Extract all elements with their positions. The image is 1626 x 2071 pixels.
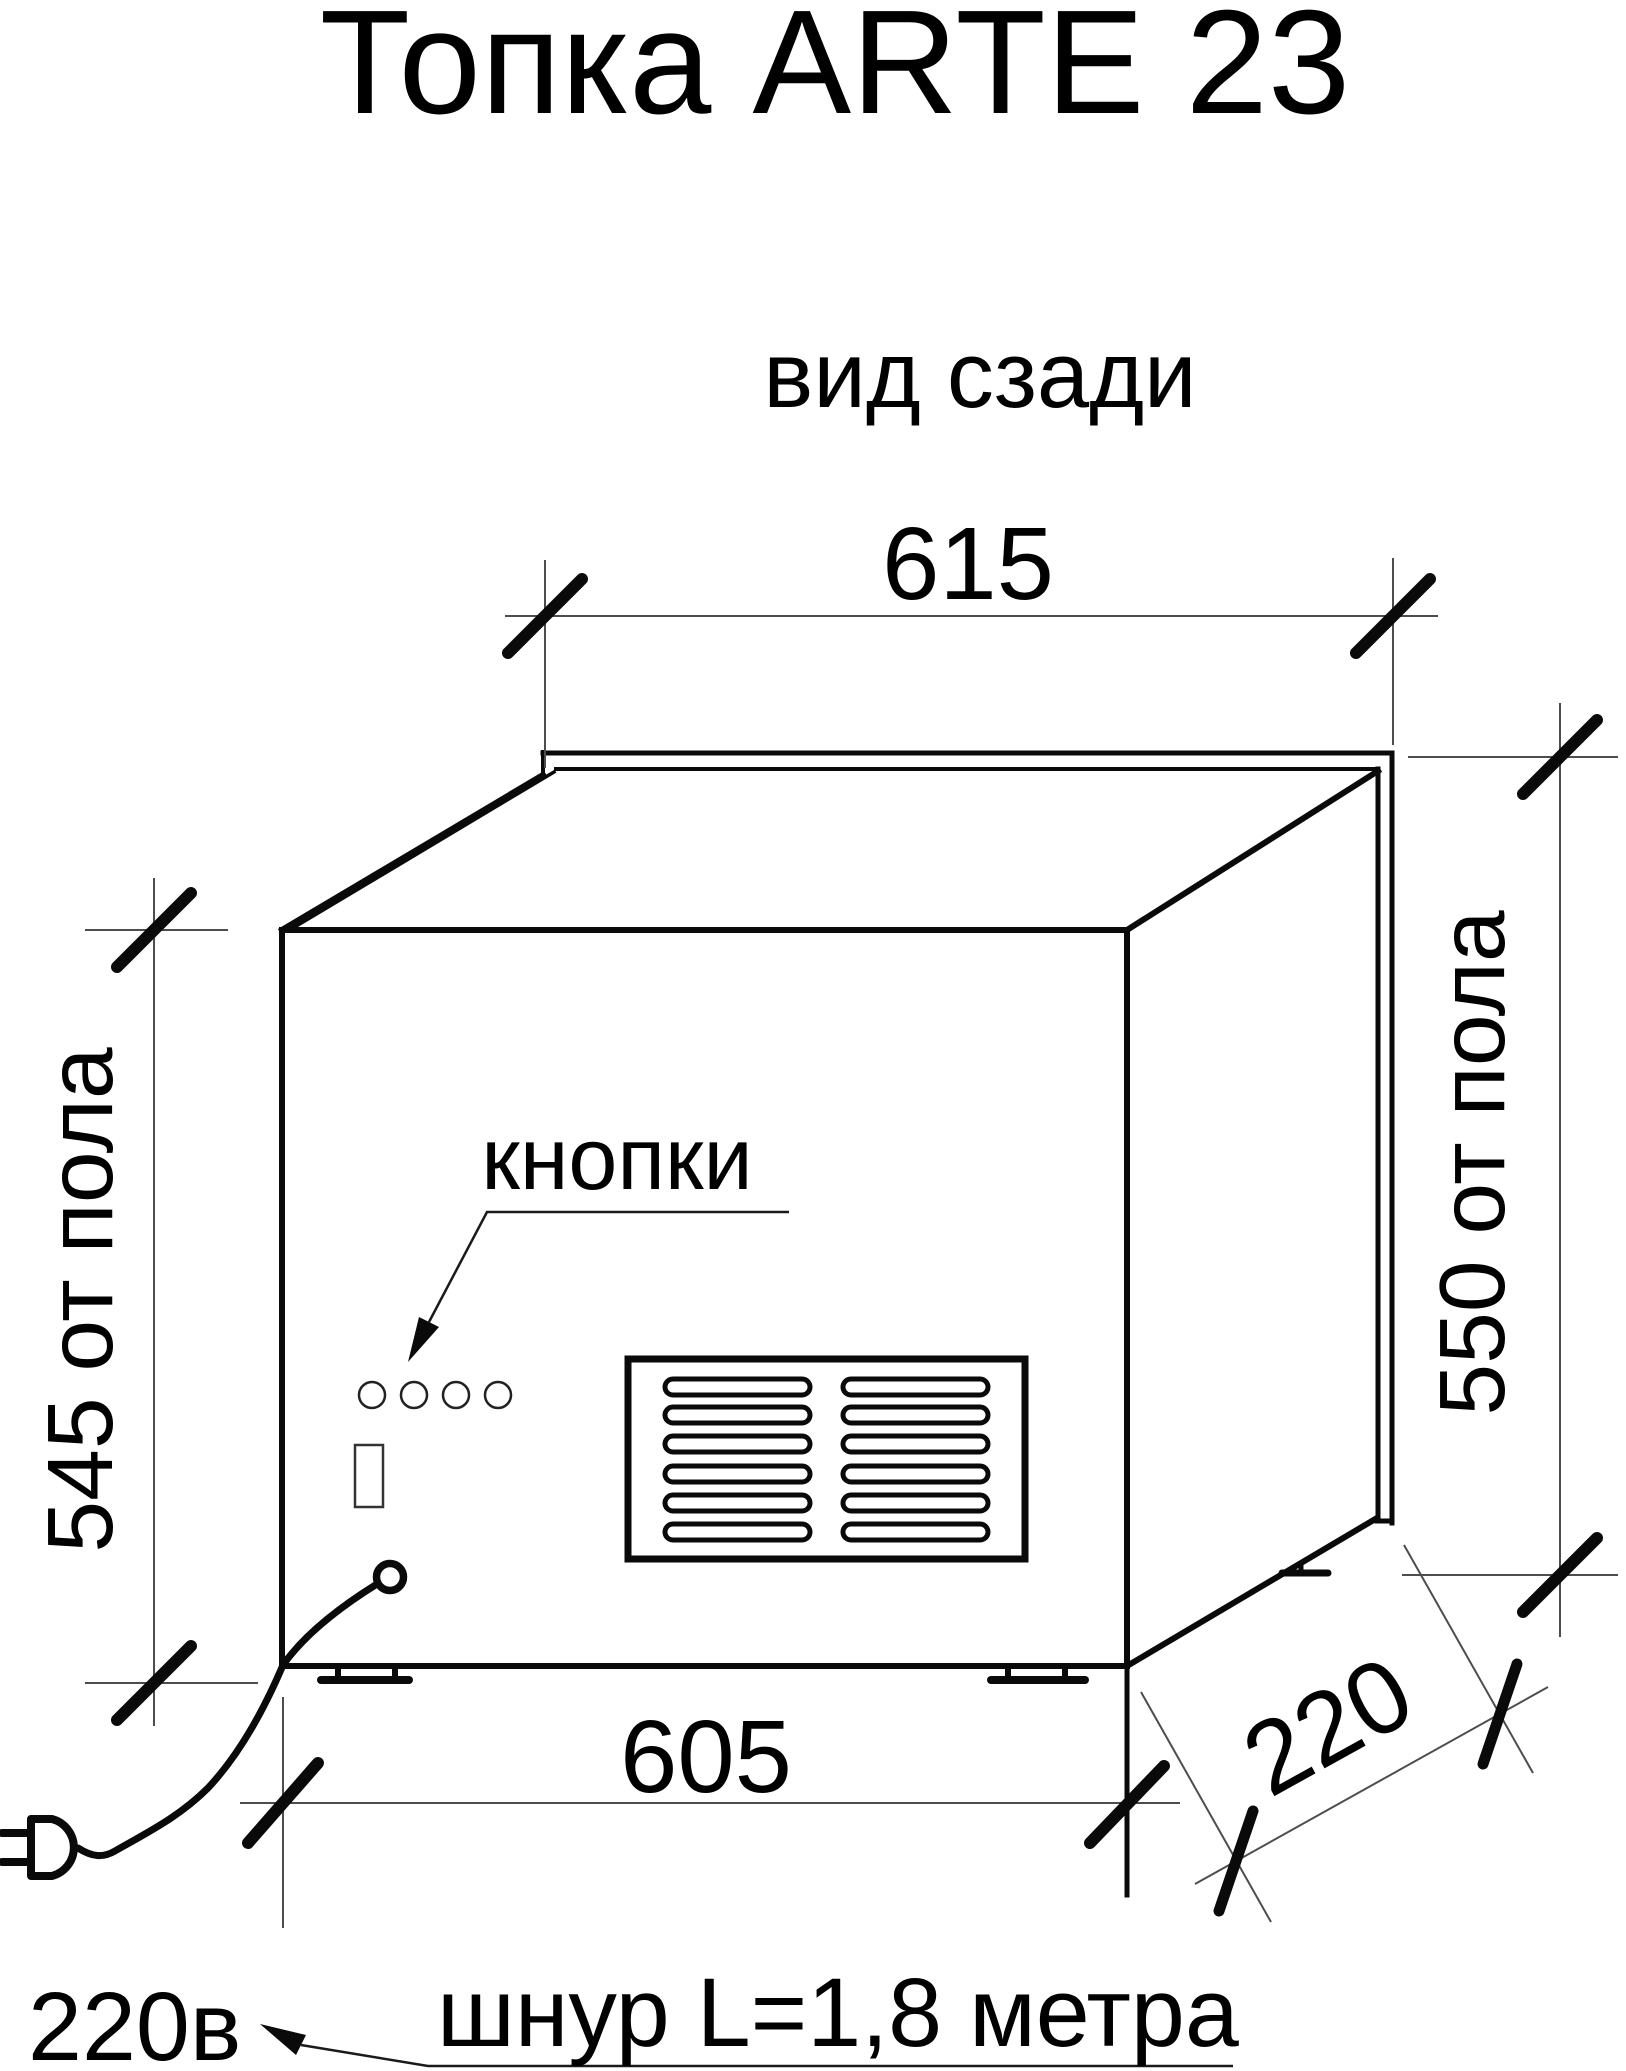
switch-cutout bbox=[355, 1445, 383, 1507]
grille-slat bbox=[843, 1466, 988, 1482]
dim-top-width: 615 bbox=[505, 506, 1438, 768]
dim-label-depth: 220 bbox=[1225, 1634, 1431, 1818]
dim-label-bottom-width: 605 bbox=[620, 1699, 792, 1814]
top-left-edge-inner bbox=[293, 772, 554, 928]
side-bottom-edge bbox=[1127, 1518, 1377, 1666]
grille-slat bbox=[665, 1379, 810, 1395]
page-title: Топка ARTE 23 bbox=[320, 0, 1351, 145]
grille-slat bbox=[665, 1407, 810, 1423]
grille-slat bbox=[665, 1436, 810, 1452]
top-right-edge bbox=[1127, 771, 1378, 930]
power-callout: 220в шнур L=1,8 метра bbox=[28, 1958, 1239, 2071]
ext-line bbox=[1404, 1545, 1533, 1773]
plug-body bbox=[31, 1819, 74, 1876]
button-circle bbox=[485, 1382, 511, 1408]
vent-grille bbox=[628, 1359, 1025, 1559]
cord-hole bbox=[377, 1564, 404, 1591]
power-label: 220в bbox=[28, 1972, 241, 2071]
technical-drawing: Топка ARTE 23 вид сзади bbox=[0, 0, 1626, 2071]
grille-slat bbox=[665, 1495, 810, 1511]
button-circle bbox=[443, 1382, 469, 1408]
dim-depth: 220 bbox=[1141, 1545, 1548, 1922]
grille-slat bbox=[843, 1407, 988, 1423]
power-plug-icon bbox=[2, 1819, 74, 1876]
dim-tick bbox=[1219, 1811, 1253, 1911]
grille-slat bbox=[843, 1379, 988, 1395]
grille-slat bbox=[665, 1524, 810, 1540]
cord-label: шнур L=1,8 метра bbox=[437, 1958, 1239, 2067]
dim-tick bbox=[1483, 1664, 1517, 1764]
power-arrowhead-icon bbox=[260, 2024, 306, 2055]
dim-bottom-width: 605 bbox=[240, 1667, 1180, 1928]
buttons-label: кнопки bbox=[481, 1109, 752, 1208]
grille-slat bbox=[843, 1524, 988, 1540]
power-cord-group bbox=[2, 1564, 404, 1877]
dim-label-top-width: 615 bbox=[882, 506, 1054, 621]
grille-slat bbox=[665, 1466, 810, 1482]
top-left-edge-outer bbox=[282, 775, 543, 930]
dim-left-height: 545 от пола bbox=[28, 878, 258, 1726]
dim-right-height: 550 от пола bbox=[1402, 703, 1618, 1637]
button-circle bbox=[401, 1382, 427, 1408]
dim-label-right-height: 550 от пола bbox=[1420, 910, 1524, 1415]
rear-view-label: вид сзади bbox=[763, 322, 1196, 427]
grille-slat bbox=[843, 1436, 988, 1452]
dim-label-left-height: 545 от пола bbox=[28, 1047, 132, 1552]
button-circle bbox=[359, 1382, 385, 1408]
grille-slat bbox=[843, 1495, 988, 1511]
